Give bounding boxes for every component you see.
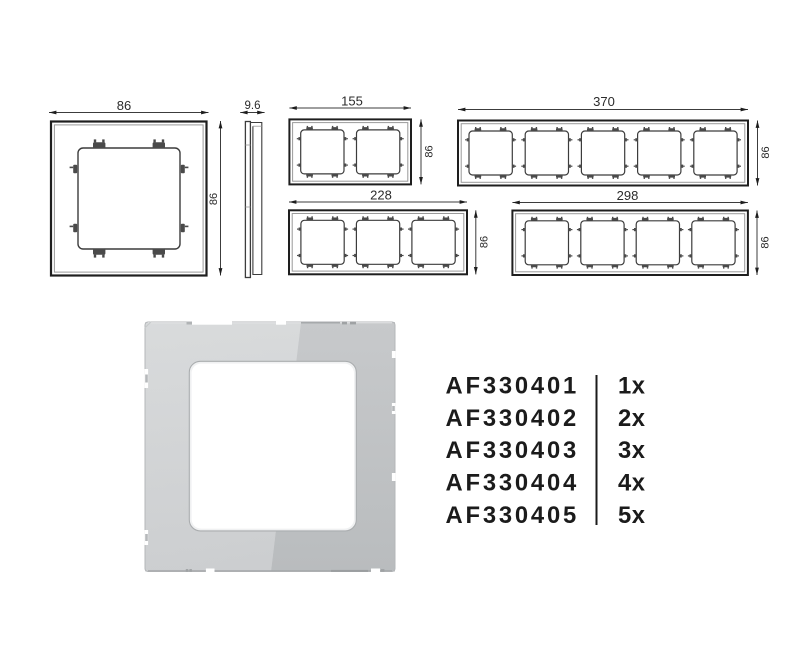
svg-text:86: 86	[117, 98, 131, 113]
svg-text:370: 370	[593, 94, 615, 109]
svg-text:5x: 5x	[618, 502, 646, 529]
svg-text:2x: 2x	[618, 405, 646, 432]
svg-text:AF330405: AF330405	[446, 502, 580, 529]
svg-text:86: 86	[478, 236, 490, 248]
svg-text:86: 86	[208, 193, 220, 205]
svg-text:9.6: 9.6	[245, 100, 261, 112]
svg-text:86: 86	[760, 146, 772, 158]
svg-text:4x: 4x	[618, 470, 646, 497]
svg-text:1x: 1x	[618, 372, 646, 399]
svg-text:AF330404: AF330404	[446, 470, 580, 497]
svg-text:86: 86	[760, 236, 772, 248]
svg-text:AF330401: AF330401	[446, 372, 580, 399]
svg-text:AF330402: AF330402	[446, 405, 580, 432]
svg-text:228: 228	[370, 188, 392, 203]
svg-text:155: 155	[341, 94, 363, 109]
svg-text:AF330403: AF330403	[446, 437, 580, 464]
svg-text:3x: 3x	[618, 437, 646, 464]
svg-text:298: 298	[617, 188, 639, 203]
svg-text:86: 86	[424, 145, 436, 157]
